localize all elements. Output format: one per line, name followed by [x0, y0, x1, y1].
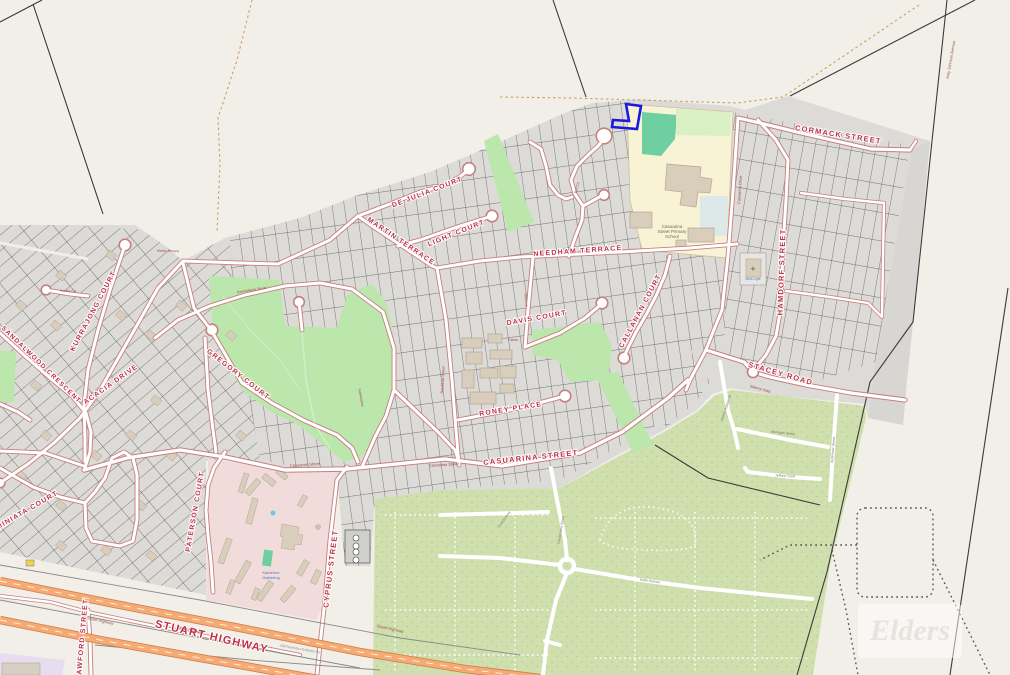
svg-text:Davis: Davis [508, 337, 518, 342]
svg-text:Martin Terrace: Martin Terrace [157, 249, 179, 253]
svg-text:Elders: Elders [869, 614, 950, 647]
svg-text:+: + [750, 264, 755, 274]
svg-text:School: School [665, 234, 679, 239]
svg-text:Beck Light: Beck Light [746, 277, 761, 281]
svg-text:Gathering: Gathering [262, 575, 280, 580]
svg-text:Karela Crt: Karela Crt [60, 289, 76, 294]
